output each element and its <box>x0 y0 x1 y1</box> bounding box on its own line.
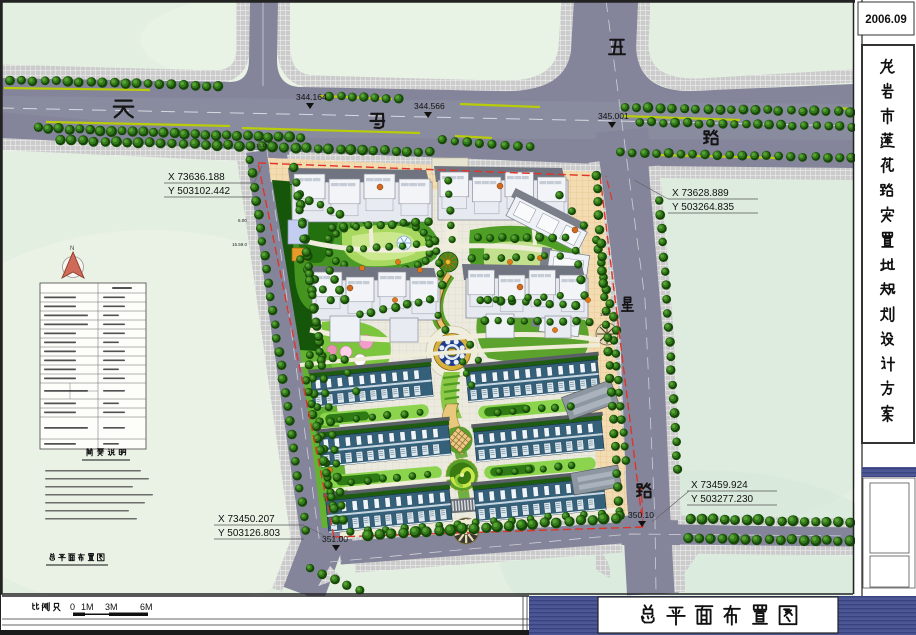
svg-text:16.10: 16.10 <box>256 143 268 148</box>
svg-text:Y 503126.803: Y 503126.803 <box>218 528 281 539</box>
svg-text:351.00: 351.00 <box>322 534 348 544</box>
svg-text:0: 0 <box>70 602 75 612</box>
svg-text:1M: 1M <box>81 602 94 612</box>
svg-text:344.566: 344.566 <box>414 101 445 111</box>
svg-text:Y 503102.442: Y 503102.442 <box>168 186 231 197</box>
svg-text:Y 503277.230: Y 503277.230 <box>691 494 754 505</box>
svg-text:X 73636.188: X 73636.188 <box>168 172 225 183</box>
svg-text:X 73450.207: X 73450.207 <box>218 514 275 525</box>
svg-text:350.10: 350.10 <box>628 510 654 520</box>
svg-text:16.0: 16.0 <box>600 312 609 317</box>
svg-text:6.00: 6.00 <box>238 218 247 223</box>
svg-text:15.59.0: 15.59.0 <box>232 242 248 247</box>
svg-text:Y 503264.835: Y 503264.835 <box>672 202 735 213</box>
svg-text:3M: 3M <box>105 602 118 612</box>
svg-text:N: N <box>70 246 74 252</box>
svg-text:345.001: 345.001 <box>598 111 629 121</box>
svg-text:6M: 6M <box>140 602 153 612</box>
svg-text:344.164: 344.164 <box>296 92 327 102</box>
svg-text:6.0: 6.0 <box>426 254 433 259</box>
svg-text:2006.09: 2006.09 <box>865 14 907 26</box>
svg-text:X 73459.924: X 73459.924 <box>691 480 748 491</box>
svg-text:X 73628.889: X 73628.889 <box>672 188 729 199</box>
